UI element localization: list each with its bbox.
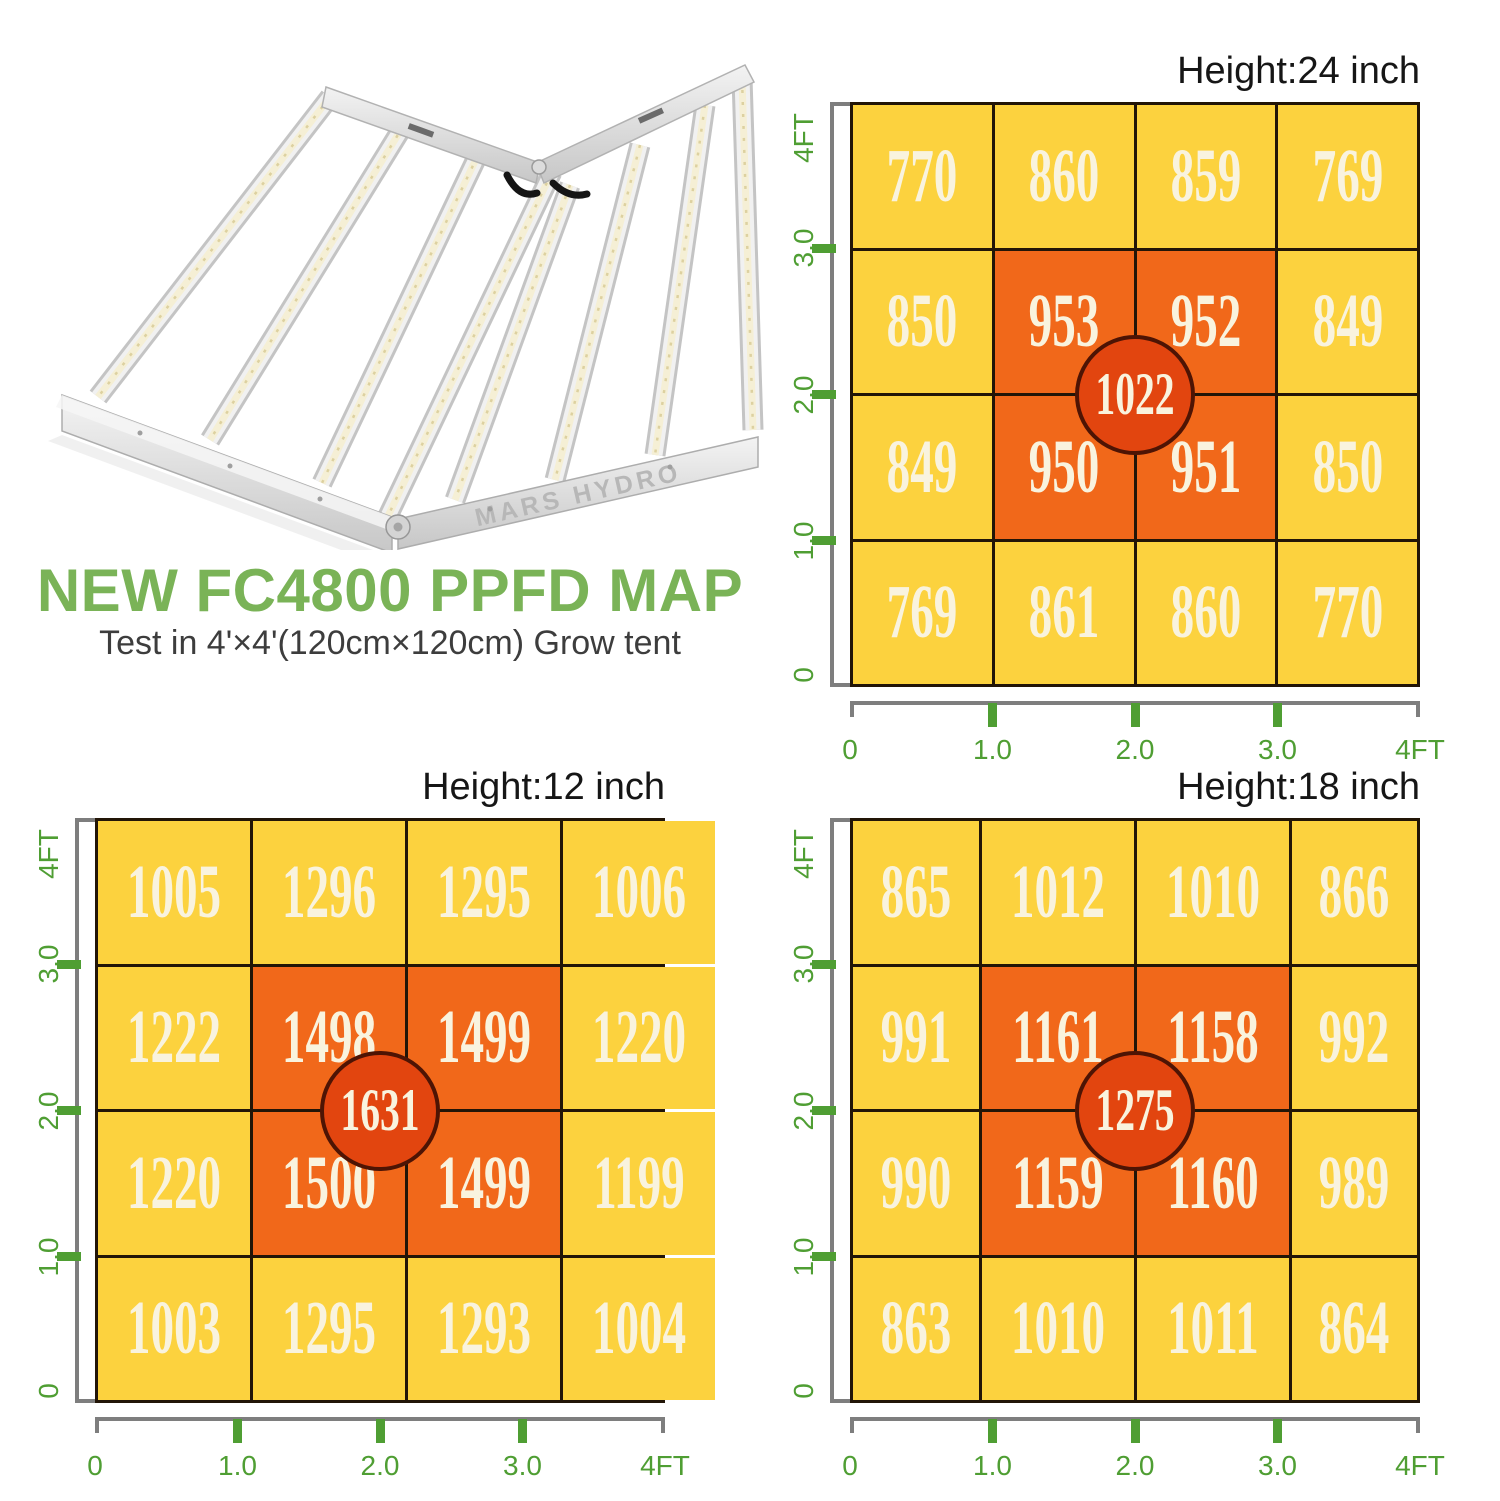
ppfd-value: 1011 — [1167, 1285, 1259, 1372]
ppfd-value: 1220 — [127, 1140, 221, 1227]
y-axis-tick-label: 2.0 — [33, 1091, 65, 1130]
ppfd-value: 866 — [1319, 849, 1390, 936]
ppfd-value: 1010 — [1010, 1285, 1104, 1372]
x-axis-tick-label: 1.0 — [973, 1450, 1012, 1482]
ppfd-cell: 849 — [1278, 251, 1417, 394]
ppfd-value: 992 — [1319, 994, 1390, 1081]
y-axis-line — [75, 818, 95, 1403]
x-axis-tick-label: 2.0 — [361, 1450, 400, 1482]
bottom-hinge — [386, 515, 410, 539]
center-max-value: 1275 — [1095, 1076, 1174, 1145]
ppfd-cell: 770 — [1278, 542, 1417, 685]
ppfd-cell: 1293 — [408, 1258, 560, 1401]
y-axis-line — [830, 102, 850, 687]
ppfd-value: 849 — [1312, 278, 1383, 365]
ppfd-value: 1499 — [437, 1140, 531, 1227]
center-max-circle: 1631 — [320, 1051, 440, 1171]
ppfd-value: 1295 — [437, 849, 531, 936]
ppfd-cell: 850 — [1278, 396, 1417, 539]
ppfd-chart-height-18in: Height:18 inch 4FT3.02.01.0001.02.03.04F… — [760, 756, 1460, 1501]
x-axis-tick-label: 0 — [87, 1450, 103, 1482]
ppfd-value: 1161 — [1012, 994, 1104, 1081]
chart-title: Height:18 inch — [1177, 766, 1420, 809]
ppfd-cell: 991 — [853, 967, 979, 1110]
ppfd-chart-height-24in: Height:24 inch 4FT3.02.01.0001.02.03.04F… — [760, 40, 1460, 785]
x-axis-line — [850, 1417, 1420, 1433]
ppfd-cell: 1011 — [1137, 1258, 1289, 1401]
ppfd-value: 1220 — [592, 994, 686, 1081]
ppfd-value: 769 — [887, 569, 958, 656]
x-axis-tick-label: 4FT — [1395, 1450, 1445, 1482]
ppfd-cell: 992 — [1292, 967, 1418, 1110]
center-max-value: 1022 — [1095, 360, 1174, 429]
y-axis-tick-label: 4FT — [788, 113, 820, 163]
ppfd-value: 860 — [1171, 569, 1242, 656]
y-axis-tick-label: 1.0 — [33, 1237, 65, 1276]
ppfd-value: 861 — [1029, 569, 1100, 656]
x-axis-tick-label: 3.0 — [503, 1450, 542, 1482]
center-max-value: 1631 — [340, 1076, 419, 1145]
x-axis-tick-label: 3.0 — [1258, 1450, 1297, 1482]
ppfd-value: 1293 — [437, 1285, 531, 1372]
ppfd-value: 1199 — [593, 1140, 685, 1227]
ppfd-value: 1296 — [282, 849, 376, 936]
ppfd-cell: 850 — [853, 251, 992, 394]
ppfd-cell: 1003 — [98, 1258, 250, 1401]
ppfd-cell: 1222 — [98, 967, 250, 1110]
y-axis-tick-label: 0 — [788, 667, 820, 683]
ppfd-cell: 1005 — [98, 821, 250, 964]
ppfd-cell: 1295 — [408, 821, 560, 964]
ppfd-value: 769 — [1312, 133, 1383, 220]
ppfd-cell: 1199 — [563, 1112, 715, 1255]
ppfd-value: 953 — [1029, 278, 1100, 365]
ppfd-grid: 7708608597698509539528498499509518507698… — [850, 102, 1420, 687]
ppfd-value: 989 — [1319, 1140, 1390, 1227]
x-axis-line — [850, 701, 1420, 717]
ppfd-value: 1006 — [592, 849, 686, 936]
ppfd-value: 1010 — [1165, 849, 1259, 936]
ppfd-cell: 770 — [853, 105, 992, 248]
product-image-folded-led-light: MARS HYDRO — [20, 35, 780, 550]
ppfd-value: 850 — [1312, 424, 1383, 511]
y-axis-tick-label: 3.0 — [788, 945, 820, 984]
ppfd-value: 849 — [887, 424, 958, 511]
ppfd-value: 863 — [880, 1285, 951, 1372]
ppfd-value: 990 — [880, 1140, 951, 1227]
ppfd-value: 1499 — [437, 994, 531, 1081]
y-axis-line — [830, 818, 850, 1403]
ppfd-value: 770 — [1312, 569, 1383, 656]
ppfd-cell: 860 — [995, 105, 1134, 248]
y-axis-tick-label: 3.0 — [33, 945, 65, 984]
x-axis-tick-label: 1.0 — [218, 1450, 257, 1482]
ppfd-cell: 864 — [1292, 1258, 1418, 1401]
ppfd-cell: 1010 — [1137, 821, 1289, 964]
y-axis-tick-label: 4FT — [33, 829, 65, 879]
ppfd-cell: 769 — [853, 542, 992, 685]
ppfd-value: 951 — [1171, 424, 1242, 511]
y-axis-tick-label: 0 — [788, 1383, 820, 1399]
ppfd-value: 1005 — [127, 849, 221, 936]
led-fixture-illustration: MARS HYDRO — [20, 35, 780, 550]
ppfd-cell: 1012 — [982, 821, 1134, 964]
page-subtitle: Test in 4'×4'(120cm×120cm) Grow tent — [30, 624, 750, 663]
y-axis-tick-label: 1.0 — [788, 521, 820, 560]
ppfd-value: 1012 — [1010, 849, 1104, 936]
ppfd-cell: 1004 — [563, 1258, 715, 1401]
ppfd-cell: 1220 — [98, 1112, 250, 1255]
ppfd-cell: 861 — [995, 542, 1134, 685]
page-title: NEW FC4800 PPFD MAP — [30, 556, 750, 625]
ppfd-cell: 1295 — [253, 1258, 405, 1401]
ppfd-chart-height-12in: Height:12 inch 4FT3.02.01.0001.02.03.04F… — [5, 756, 705, 1501]
ppfd-value: 1158 — [1167, 994, 1259, 1081]
ppfd-value: 865 — [880, 849, 951, 936]
y-axis-tick-label: 2.0 — [788, 1091, 820, 1130]
x-axis-line — [95, 1417, 665, 1433]
ppfd-value: 1222 — [127, 994, 221, 1081]
ppfd-value: 952 — [1171, 278, 1242, 365]
x-axis-tick-label: 0 — [842, 1450, 858, 1482]
center-max-circle: 1275 — [1075, 1051, 1195, 1171]
ppfd-value: 1003 — [127, 1285, 221, 1372]
ppfd-grid: 1005129612951006122214981499122012201500… — [95, 818, 665, 1403]
ppfd-value: 1160 — [1167, 1140, 1259, 1227]
chart-title: Height:24 inch — [1177, 50, 1420, 93]
ppfd-cell: 1296 — [253, 821, 405, 964]
ppfd-cell: 866 — [1292, 821, 1418, 964]
ppfd-value: 770 — [887, 133, 958, 220]
ppfd-grid: 8651012101086699111611158992990115911609… — [850, 818, 1420, 1403]
ppfd-cell: 863 — [853, 1258, 979, 1401]
chart-title: Height:12 inch — [422, 766, 665, 809]
y-axis-tick-label: 2.0 — [788, 375, 820, 414]
ppfd-cell: 1220 — [563, 967, 715, 1110]
y-axis-tick-label: 0 — [33, 1383, 65, 1399]
ppfd-value: 860 — [1029, 133, 1100, 220]
ppfd-value: 859 — [1171, 133, 1242, 220]
ppfd-cell: 859 — [1137, 105, 1276, 248]
y-axis-tick-label: 1.0 — [788, 1237, 820, 1276]
y-axis-tick-label: 3.0 — [788, 229, 820, 268]
ppfd-value: 864 — [1319, 1285, 1390, 1372]
ppfd-value: 1159 — [1012, 1140, 1104, 1227]
ppfd-value: 850 — [887, 278, 958, 365]
x-axis-tick-label: 4FT — [640, 1450, 690, 1482]
ppfd-value: 950 — [1029, 424, 1100, 511]
y-axis-tick-label: 4FT — [788, 829, 820, 879]
ppfd-cell: 769 — [1278, 105, 1417, 248]
ppfd-cell: 860 — [1137, 542, 1276, 685]
ppfd-cell: 865 — [853, 821, 979, 964]
ppfd-cell: 989 — [1292, 1112, 1418, 1255]
ppfd-cell: 1006 — [563, 821, 715, 964]
x-axis-tick-label: 2.0 — [1116, 1450, 1155, 1482]
center-max-circle: 1022 — [1075, 335, 1195, 455]
ppfd-value: 1295 — [282, 1285, 376, 1372]
ppfd-cell: 990 — [853, 1112, 979, 1255]
ppfd-cell: 1010 — [982, 1258, 1134, 1401]
ppfd-cell: 849 — [853, 396, 992, 539]
ppfd-value: 1004 — [592, 1285, 686, 1372]
ppfd-value: 991 — [880, 994, 951, 1081]
